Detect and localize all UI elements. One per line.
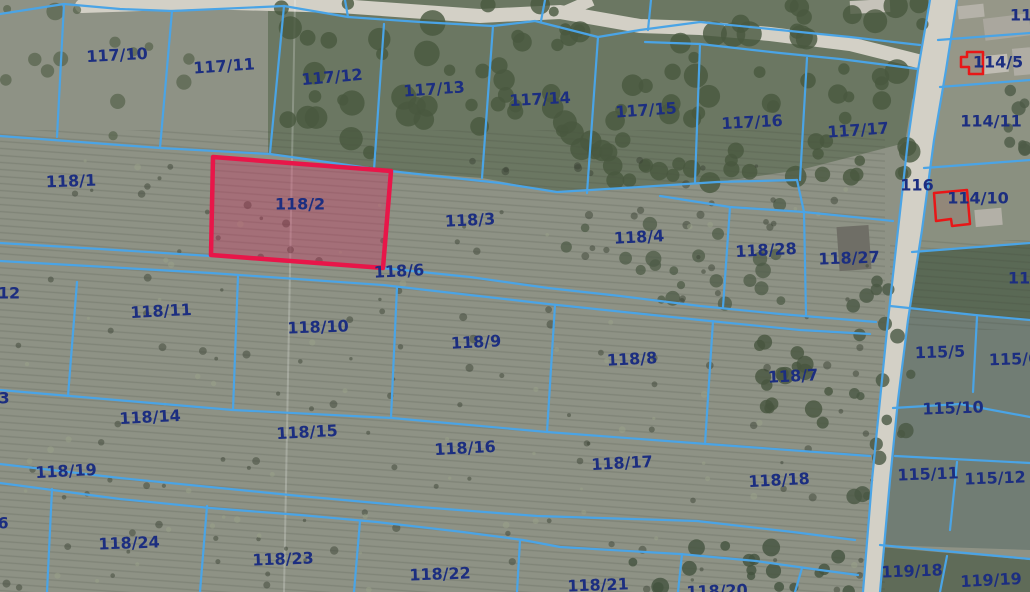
cadastral-map-viewport[interactable]: 117/10117/11117/12117/13117/14117/15117/… bbox=[0, 0, 1030, 592]
building-outline-114-10 bbox=[934, 190, 970, 226]
selected-parcel-highlight[interactable] bbox=[211, 157, 391, 268]
